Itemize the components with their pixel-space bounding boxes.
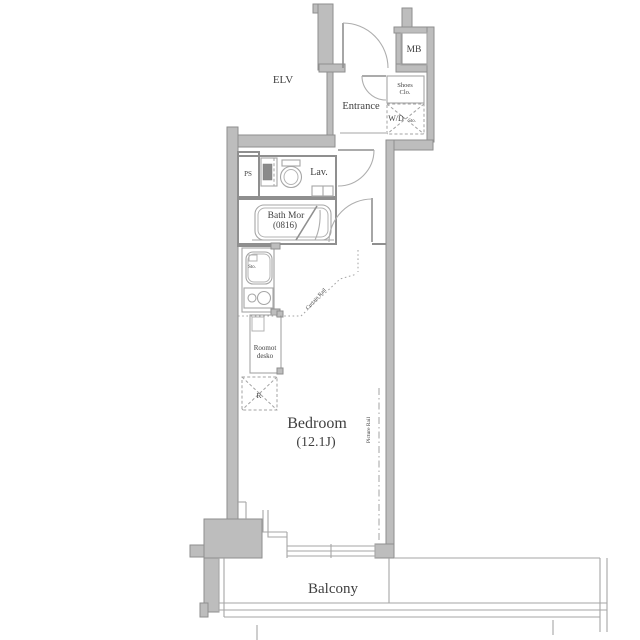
wall-elv-bottom: [232, 135, 335, 147]
label-refrigerator: R: [256, 391, 261, 400]
label-wd: W/D: [388, 114, 404, 123]
wall-left-outer: [227, 127, 238, 519]
wall-pillar-foot: [200, 603, 208, 617]
bath-area: [238, 198, 386, 244]
toilet-bowl-inner: [284, 170, 298, 185]
label-ps: PS: [244, 170, 252, 178]
kitchen-wall-stub-top: [271, 243, 280, 249]
label-shoes-2: Clo.: [399, 89, 410, 96]
label-bedroom-size: (12.1J): [296, 435, 336, 450]
wall-pillar: [204, 519, 262, 558]
wall-door-pier: [319, 64, 345, 72]
label-unit-2: desko: [257, 352, 274, 360]
stove-burner-large: [258, 292, 271, 305]
hall-door-arc: [338, 150, 374, 186]
curtain-rail-line: [238, 274, 357, 316]
label-unit-1: Roomot: [254, 344, 277, 352]
label-balcony: Balcony: [308, 581, 358, 597]
label-bath-2: (0816): [273, 220, 297, 230]
entrance-area: [340, 23, 427, 134]
wall-elv-right-upper: [318, 4, 333, 70]
wall-mb-stub: [402, 8, 412, 29]
wall-elv-right-lower: [327, 68, 333, 135]
label-entrance: Entrance: [342, 101, 380, 112]
balcony-area: [219, 558, 607, 640]
wall-right-outer-upper: [427, 27, 434, 142]
wall-step-2: [268, 510, 287, 537]
wall-right-outer: [386, 140, 394, 558]
label-curtain-rail: Curtain Rail: [305, 287, 328, 311]
label-sink-small: Sto.: [248, 265, 256, 270]
washbasin-bowl: [263, 164, 272, 180]
label-wd-small: Sto.: [408, 119, 416, 124]
toilet-tank: [282, 160, 300, 166]
walls: [190, 4, 434, 617]
floor-plan-drawing: ELV MB Entrance Shoes Clo. W/D Sto. PS L…: [0, 0, 640, 640]
shoes-door-arc: [362, 76, 386, 100]
label-picture-rail: Picture Rail: [366, 416, 372, 443]
label-mb: MB: [407, 45, 422, 55]
label-shoes-1: Shoes: [397, 82, 413, 89]
label-elv: ELV: [273, 74, 293, 86]
bath-door-arc: [315, 210, 320, 240]
stove-burner-small: [248, 294, 256, 302]
unit-wall-stub-bottom: [277, 368, 283, 374]
front-door-arc: [343, 23, 388, 68]
label-bedroom: Bedroom: [287, 415, 347, 432]
floor-plan: ELV MB Entrance Shoes Clo. W/D Sto. PS L…: [0, 0, 640, 640]
wall-pillar-arm: [190, 545, 204, 557]
wall-step-1: [263, 510, 287, 532]
wall-window-right-pier: [375, 544, 394, 558]
label-lav: Lav.: [310, 167, 327, 178]
storage-unit-inner: [252, 317, 264, 331]
lavatory-area: [238, 150, 374, 197]
